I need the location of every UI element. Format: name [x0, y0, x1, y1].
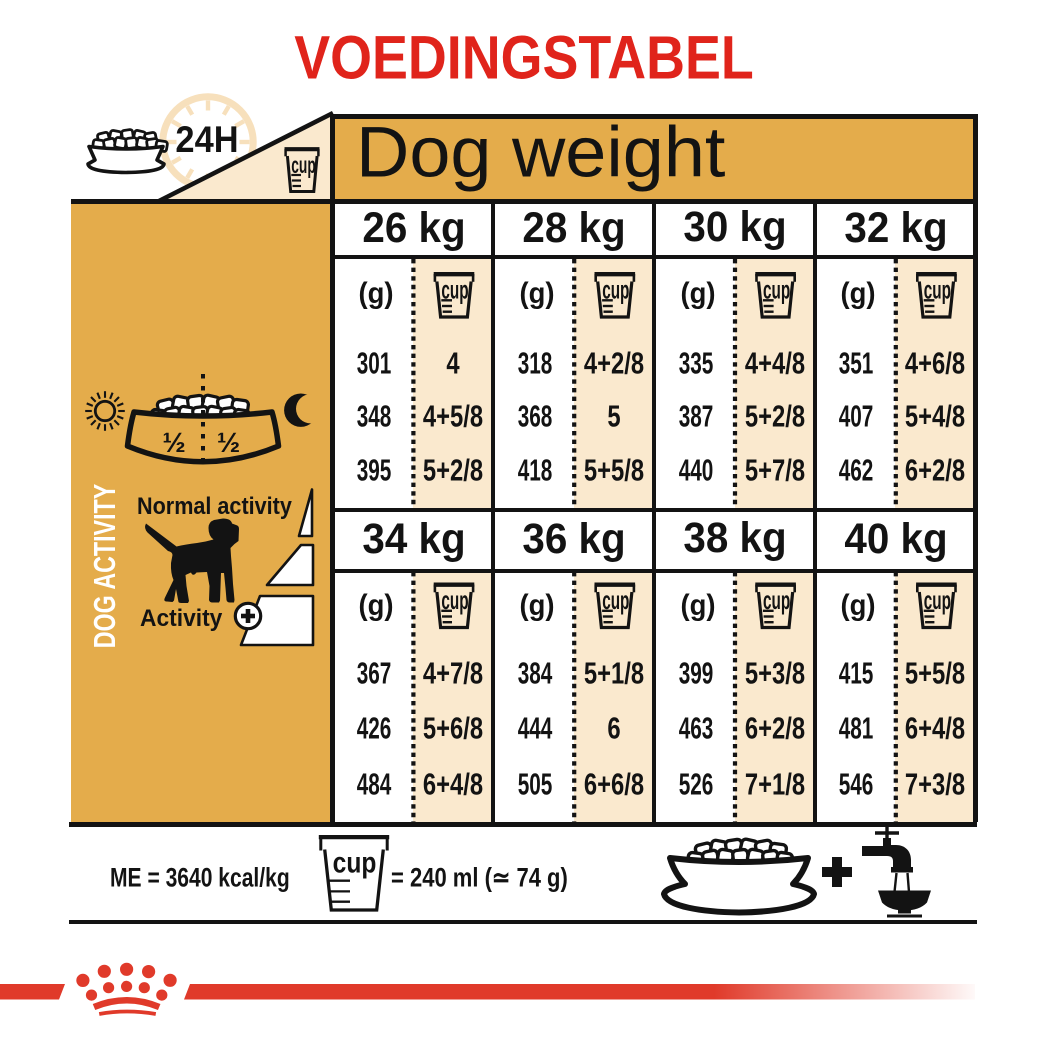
- svg-text:½: ½: [217, 427, 240, 458]
- svg-text:cup: cup: [291, 153, 316, 178]
- svg-text:cup: cup: [332, 845, 376, 879]
- svg-text:½: ½: [162, 427, 185, 458]
